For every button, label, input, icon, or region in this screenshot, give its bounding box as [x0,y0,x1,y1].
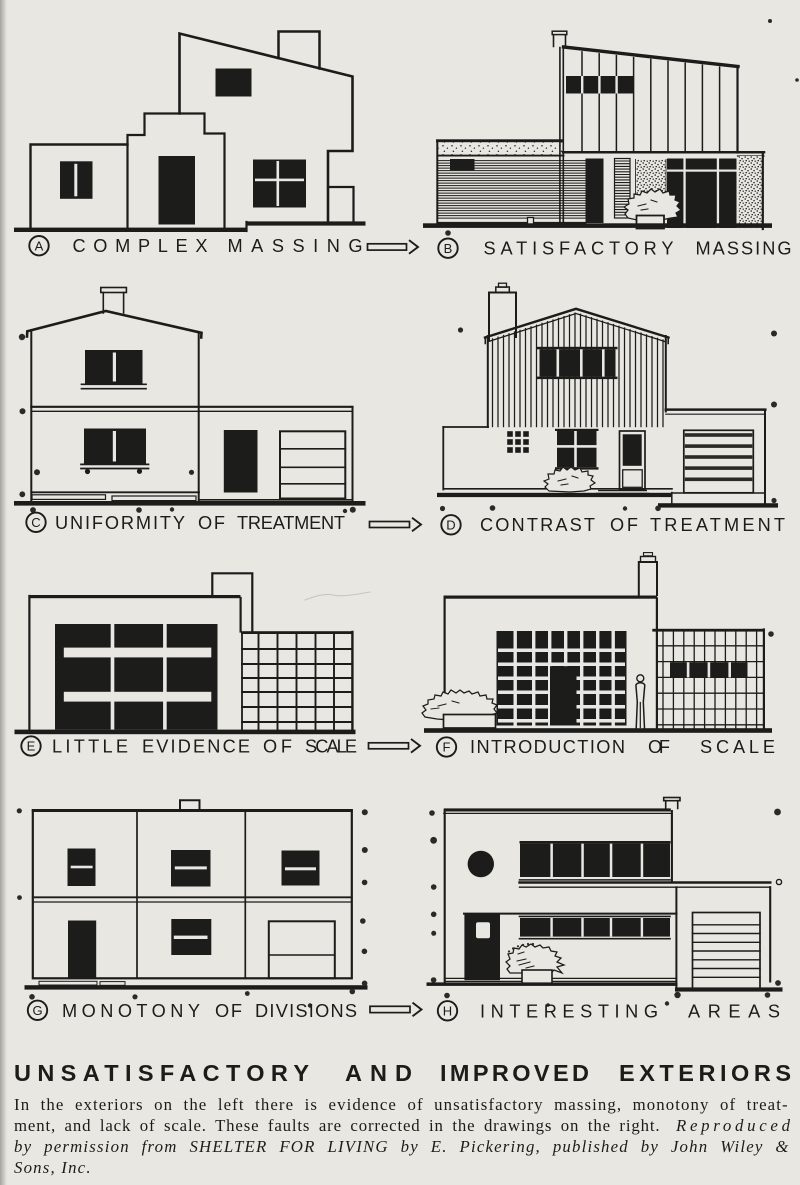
svg-text:C: C [31,515,40,530]
svg-text:COMPLEX: COMPLEX [73,236,208,256]
svg-text:DIVISIONS: DIVISIONS [255,1001,357,1021]
svg-text:G: G [32,1003,42,1018]
svg-text:A: A [35,238,44,253]
svg-text:EXTERIORS: EXTERIORS [619,1060,791,1086]
svg-text:OF: OF [610,515,638,535]
svg-text:CONTRAST: CONTRAST [480,515,595,535]
svg-text:UNIFORMITY: UNIFORMITY [55,513,185,533]
svg-text:INTRODUCTION: INTRODUCTION [470,737,625,757]
svg-text:IMPROVED: IMPROVED [440,1060,589,1086]
svg-text:OF: OF [198,513,225,533]
svg-text:TREATMENT: TREATMENT [650,515,785,535]
svg-text:SCALE: SCALE [700,737,775,757]
svg-text:MONOTONY: MONOTONY [62,1001,200,1021]
svg-text:OF: OF [215,1001,242,1021]
svg-text:MASSING: MASSING [696,239,792,259]
svg-text:D: D [446,517,455,532]
svg-text:In the exteriors on the left t: In the exteriors on the left there is ev… [14,1095,789,1114]
svg-text:EVIDENCE: EVIDENCE [142,737,250,757]
svg-text:TREATMENT: TREATMENT [237,513,345,533]
svg-text:Sons, Inc.: Sons, Inc. [14,1158,92,1177]
svg-text:SCALE: SCALE [305,737,357,757]
svg-text:B: B [444,241,453,256]
svg-text:E: E [27,739,36,754]
svg-text:OF: OF [648,737,670,757]
svg-text:F: F [443,740,451,755]
svg-text:ment, and lack of scale. These: ment, and lack of scale. These faults ar… [14,1116,660,1135]
svg-text:AND: AND [345,1060,412,1086]
svg-text:by permission from SHELTER FOR: by permission from SHELTER FOR LIVING by… [14,1137,790,1156]
svg-text:H: H [443,1003,452,1018]
